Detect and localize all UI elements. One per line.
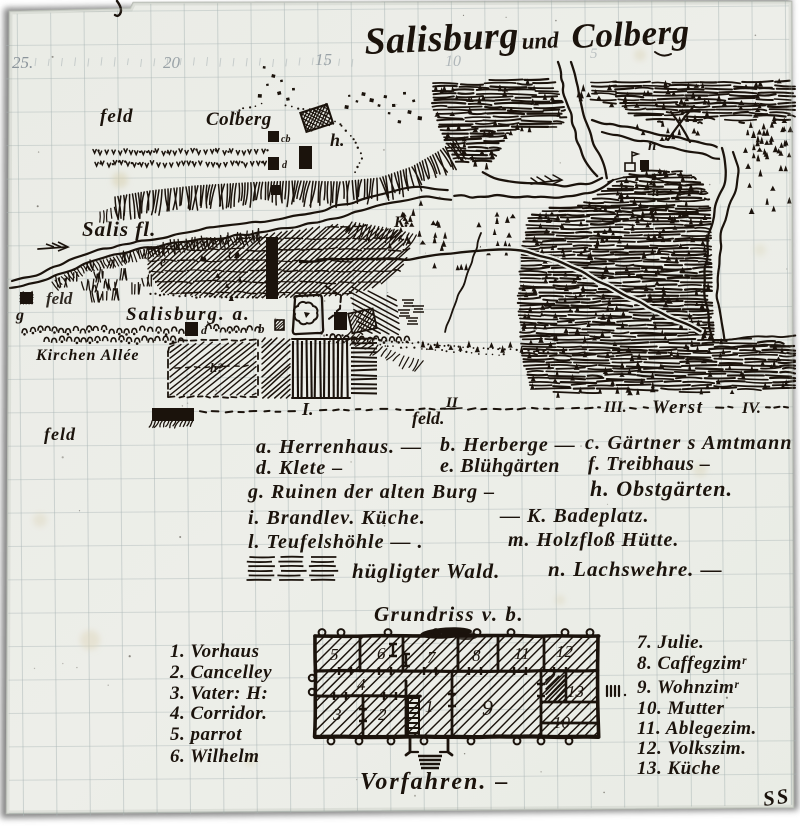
svg-text:l. Teufelshöhle — .: l. Teufelshöhle — . bbox=[248, 531, 424, 553]
svg-text:2. Cancelley: 2. Cancelley bbox=[169, 662, 272, 683]
svg-text:cb: cb bbox=[281, 134, 290, 145]
svg-text:13. Küche: 13. Küche bbox=[637, 758, 721, 779]
svg-text:11: 11 bbox=[514, 644, 530, 663]
svg-text:5: 5 bbox=[330, 645, 339, 664]
svg-text:7. Julie.: 7. Julie. bbox=[637, 632, 704, 653]
svg-text:5: 5 bbox=[590, 46, 598, 62]
svg-text:f. Treibhaus –: f. Treibhaus – bbox=[588, 453, 710, 475]
svg-text:Salisburg: Salisburg bbox=[364, 14, 520, 63]
svg-text:10: 10 bbox=[553, 713, 571, 732]
svg-text:Kirchen Allée: Kirchen Allée bbox=[35, 347, 140, 364]
svg-text:10. Mutter: 10. Mutter bbox=[637, 698, 724, 719]
svg-text:13: 13 bbox=[567, 682, 584, 701]
svg-text:b. Herberge —: b. Herberge — bbox=[440, 434, 576, 456]
svg-text:d. Klete –: d. Klete – bbox=[256, 457, 343, 479]
svg-text:6. Wilhelm: 6. Wilhelm bbox=[170, 746, 259, 767]
svg-text:12. Volkszim.: 12. Volkszim. bbox=[637, 738, 746, 759]
svg-text:3. Vater: H:: 3. Vater: H: bbox=[169, 683, 268, 704]
svg-text:n: n bbox=[648, 138, 656, 154]
svg-text:feld.: feld. bbox=[412, 408, 444, 428]
svg-text:12: 12 bbox=[556, 642, 574, 661]
svg-text:— K. Badeplatz.: — K. Badeplatz. bbox=[499, 505, 649, 527]
svg-text:25.: 25. bbox=[12, 53, 33, 72]
svg-text:feld: feld bbox=[100, 106, 134, 127]
svg-text:9: 9 bbox=[482, 695, 493, 720]
svg-text:3: 3 bbox=[332, 705, 342, 724]
svg-text:4. Corridor.: 4. Corridor. bbox=[169, 703, 267, 724]
svg-text:IV.: IV. bbox=[741, 400, 761, 417]
svg-text:hügligter Wald.: hügligter Wald. bbox=[352, 559, 500, 583]
svg-text:5. parrot: 5. parrot bbox=[170, 724, 242, 745]
svg-text:feld: feld bbox=[44, 424, 76, 444]
svg-text:e: e bbox=[160, 254, 166, 269]
svg-text:und: und bbox=[521, 27, 560, 54]
svg-text:Colberg: Colberg bbox=[206, 109, 272, 130]
svg-text:Colberg: Colberg bbox=[571, 12, 691, 56]
svg-text:10: 10 bbox=[445, 53, 461, 70]
svg-text:Werst: Werst bbox=[652, 397, 703, 418]
svg-text:2: 2 bbox=[378, 705, 387, 724]
svg-text:i. Brandlev. Küche.: i. Brandlev. Küche. bbox=[248, 507, 426, 529]
svg-text:4: 4 bbox=[357, 675, 366, 694]
svg-text:e. Blühgärten: e. Blühgärten bbox=[440, 455, 560, 477]
svg-text:n. Lachswehre. —: n. Lachswehre. — bbox=[548, 557, 723, 581]
svg-text:Salisburg. a.: Salisburg. a. bbox=[126, 304, 251, 325]
svg-text:h.: h. bbox=[330, 130, 345, 150]
svg-text:8: 8 bbox=[472, 646, 481, 665]
svg-text:20: 20 bbox=[163, 53, 181, 72]
svg-text:8. Caffegzimʳ: 8. Caffegzimʳ bbox=[637, 653, 747, 674]
svg-text:feld: feld bbox=[46, 289, 73, 308]
svg-text:6: 6 bbox=[377, 644, 386, 663]
svg-text:Vorfahren. –: Vorfahren. – bbox=[360, 769, 509, 795]
svg-text:g: g bbox=[15, 307, 24, 324]
svg-text:15: 15 bbox=[315, 50, 332, 69]
svg-text:a. Herrenhaus. —: a. Herrenhaus. — bbox=[256, 436, 422, 458]
svg-text:I.: I. bbox=[301, 399, 314, 419]
svg-text:1. Vorhaus: 1. Vorhaus bbox=[170, 641, 260, 662]
svg-text:Grundriss v. b.: Grundriss v. b. bbox=[374, 602, 524, 626]
svg-text:m. Holzfloß Hütte.: m. Holzfloß Hütte. bbox=[508, 529, 679, 551]
svg-text:Salis fl.: Salis fl. bbox=[82, 217, 156, 241]
svg-text:h?: h? bbox=[210, 360, 224, 375]
svg-text:g. Ruinen der alten Burg –: g. Ruinen der alten Burg – bbox=[247, 481, 495, 503]
svg-text:III.: III. bbox=[603, 399, 627, 416]
svg-text:1: 1 bbox=[425, 697, 434, 716]
svg-text:11. Ablegezim.: 11. Ablegezim. bbox=[637, 718, 757, 739]
svg-text:h. Obstgärten.: h. Obstgärten. bbox=[590, 476, 733, 501]
svg-text:c. Gärtner s Amtmann: c. Gärtner s Amtmann bbox=[585, 432, 793, 454]
svg-text:9. Wohnzimʳ: 9. Wohnzimʳ bbox=[637, 677, 739, 698]
